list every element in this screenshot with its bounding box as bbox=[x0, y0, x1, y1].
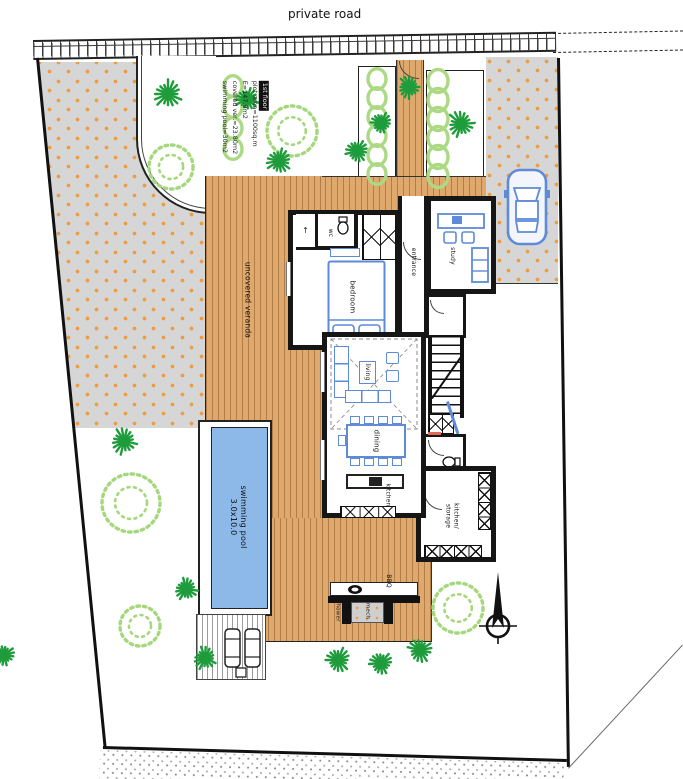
palm-tree bbox=[155, 79, 181, 105]
bush-tree bbox=[120, 606, 160, 646]
info-line-2: plot area=1100sq.m bbox=[249, 81, 259, 185]
bush-tree bbox=[149, 145, 193, 189]
palm-tree bbox=[346, 141, 367, 161]
palm-tree bbox=[408, 640, 432, 662]
palm-tree bbox=[113, 428, 137, 454]
bush-tree bbox=[102, 474, 160, 532]
palm-tree bbox=[195, 647, 215, 669]
palm-tree bbox=[176, 578, 198, 599]
vegetation-layer bbox=[0, 0, 683, 779]
bush-tree bbox=[267, 106, 317, 156]
bush-tree bbox=[433, 583, 483, 633]
info-line-3: E=147.9m2 bbox=[239, 81, 249, 185]
info-line-1: 1st floor bbox=[259, 81, 269, 111]
palm-tree bbox=[400, 77, 419, 99]
palm-tree bbox=[450, 112, 475, 137]
palm-tree bbox=[0, 647, 14, 666]
site-plan: private road uncovered veranda swimming … bbox=[0, 0, 683, 779]
palm-tree bbox=[267, 149, 289, 172]
palm-tree bbox=[369, 654, 391, 674]
palm-tree bbox=[326, 648, 349, 671]
info-line-5: swimming pool=30m2 bbox=[219, 81, 229, 185]
plan-info-block: 1st floor plot area=1100sq.m E=147.9m2 c… bbox=[219, 81, 269, 185]
info-line-4: covered ver.=23.80m2 bbox=[229, 81, 239, 185]
